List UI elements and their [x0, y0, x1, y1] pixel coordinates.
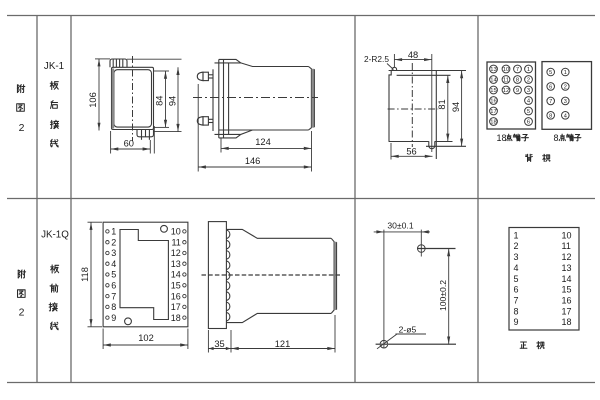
svg-text:5: 5	[527, 109, 530, 115]
svg-text:8: 8	[516, 78, 519, 84]
svg-text:6: 6	[549, 84, 552, 90]
svg-text:2: 2	[19, 122, 25, 134]
svg-text:15: 15	[562, 285, 572, 295]
svg-text:118: 118	[80, 267, 90, 282]
svg-text:94: 94	[167, 96, 177, 106]
svg-text:100±0.2: 100±0.2	[438, 280, 448, 311]
svg-text:6: 6	[111, 281, 116, 291]
svg-text:6: 6	[514, 285, 519, 295]
svg-text:124: 124	[255, 137, 271, 147]
svg-text:3: 3	[111, 248, 116, 258]
svg-text:18: 18	[562, 317, 572, 327]
svg-text:18: 18	[171, 313, 181, 323]
svg-text:12: 12	[171, 248, 181, 258]
svg-text:4: 4	[111, 259, 116, 269]
svg-text:2-R2.5: 2-R2.5	[364, 54, 389, 64]
svg-text:7: 7	[514, 296, 519, 306]
svg-text:6: 6	[527, 120, 530, 126]
svg-text:13: 13	[171, 259, 181, 269]
svg-text:84: 84	[155, 96, 165, 106]
svg-text:14: 14	[171, 270, 181, 280]
svg-text:3: 3	[527, 88, 530, 94]
svg-text:106: 106	[88, 92, 98, 108]
svg-text:10: 10	[503, 67, 509, 73]
svg-text:35: 35	[214, 339, 224, 349]
svg-text:7: 7	[549, 99, 552, 105]
svg-text:17: 17	[171, 302, 181, 312]
svg-text:11: 11	[503, 78, 509, 84]
svg-text:2: 2	[527, 78, 530, 84]
svg-text:17: 17	[490, 109, 496, 115]
svg-text:121: 121	[275, 339, 291, 349]
svg-text:16: 16	[490, 99, 496, 105]
svg-text:1: 1	[514, 230, 519, 240]
svg-text:9: 9	[514, 317, 519, 327]
svg-text:14: 14	[490, 78, 497, 84]
svg-text:9: 9	[516, 88, 519, 94]
svg-text:11: 11	[171, 237, 180, 247]
svg-text:4: 4	[514, 263, 519, 273]
svg-text:13: 13	[562, 263, 572, 273]
svg-text:JK-1Q: JK-1Q	[41, 230, 69, 241]
svg-text:2: 2	[19, 306, 25, 318]
svg-text:5: 5	[549, 70, 552, 76]
svg-text:60: 60	[124, 139, 134, 149]
svg-text:17: 17	[562, 306, 572, 316]
svg-text:7: 7	[516, 67, 519, 73]
svg-text:14: 14	[562, 274, 572, 284]
svg-text:15: 15	[490, 88, 496, 94]
svg-text:81: 81	[437, 99, 447, 109]
svg-text:10: 10	[562, 230, 572, 240]
svg-text:94: 94	[451, 102, 461, 112]
svg-text:2: 2	[514, 241, 519, 251]
svg-text:12: 12	[503, 88, 509, 94]
svg-text:9: 9	[111, 313, 116, 323]
svg-text:4: 4	[564, 113, 567, 119]
svg-text:30±0.1: 30±0.1	[387, 220, 413, 230]
svg-text:13: 13	[490, 67, 496, 73]
svg-text:16: 16	[171, 291, 181, 301]
svg-text:56: 56	[406, 147, 416, 157]
svg-text:3: 3	[514, 252, 519, 262]
svg-text:8: 8	[553, 133, 558, 143]
svg-text:11: 11	[562, 241, 571, 251]
svg-text:2: 2	[111, 237, 116, 247]
svg-text:146: 146	[245, 156, 261, 166]
svg-text:48: 48	[408, 50, 418, 60]
svg-text:102: 102	[138, 333, 154, 343]
svg-text:18: 18	[496, 133, 506, 143]
svg-text:5: 5	[514, 274, 519, 284]
svg-text:1: 1	[111, 227, 116, 237]
svg-text:8: 8	[111, 302, 116, 312]
svg-text:8: 8	[549, 113, 552, 119]
svg-text:JK-1: JK-1	[44, 61, 64, 72]
svg-text:18: 18	[490, 120, 496, 126]
svg-text:2-ø5: 2-ø5	[399, 325, 417, 335]
svg-text:15: 15	[171, 281, 181, 291]
svg-text:5: 5	[111, 270, 116, 280]
svg-text:7: 7	[111, 291, 116, 301]
svg-text:2: 2	[564, 84, 567, 90]
svg-text:1: 1	[564, 70, 567, 76]
svg-text:12: 12	[562, 252, 572, 262]
svg-text:8: 8	[514, 306, 519, 316]
svg-text:10: 10	[171, 227, 181, 237]
svg-text:3: 3	[564, 99, 567, 105]
svg-text:1: 1	[527, 67, 530, 73]
svg-text:16: 16	[562, 296, 572, 306]
